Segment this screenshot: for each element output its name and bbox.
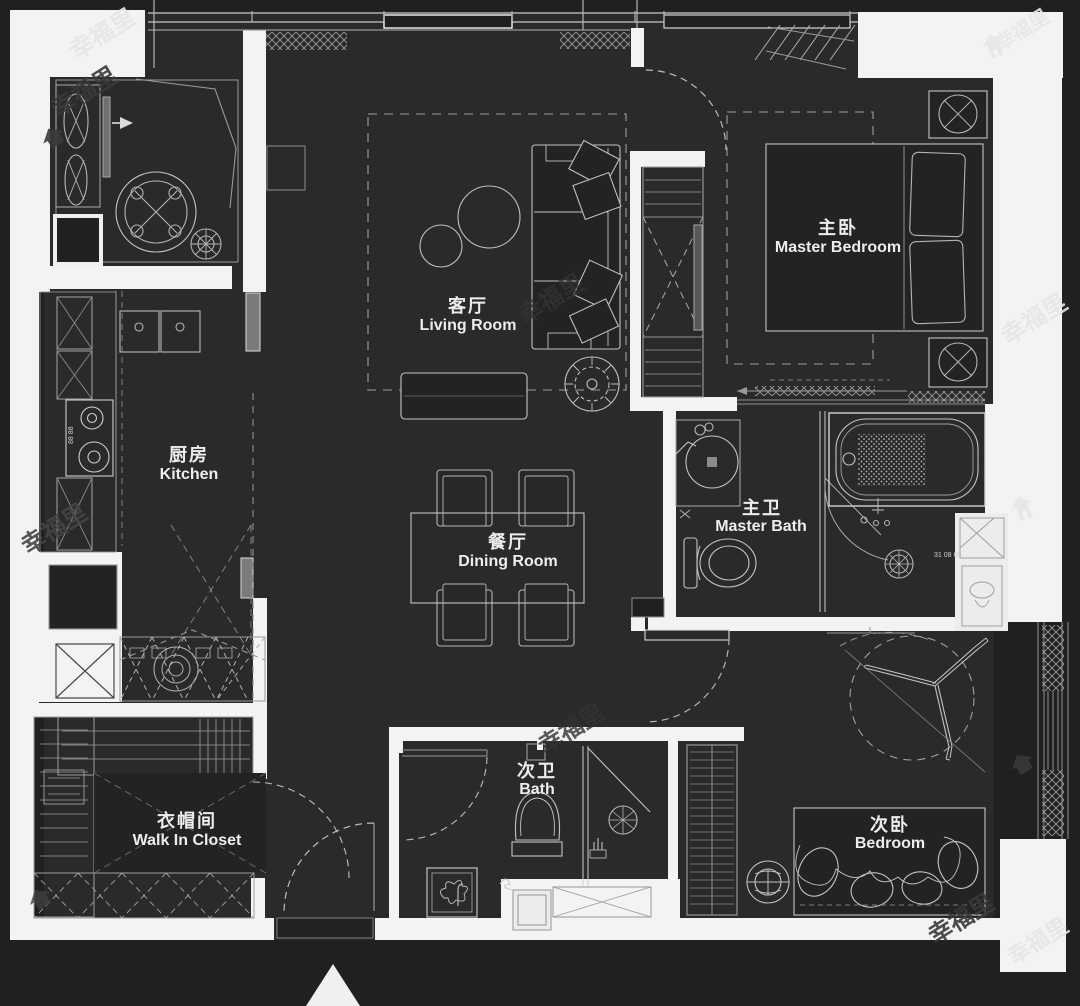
svg-text:Master Bedroom: Master Bedroom — [775, 239, 901, 256]
svg-text:次卫: 次卫 — [517, 760, 557, 781]
svg-text:31 08 60: 31 08 60 — [934, 552, 961, 559]
svg-text:厨房: 厨房 — [169, 444, 209, 465]
svg-text:餐厅: 餐厅 — [487, 531, 528, 552]
svg-text:Master Bath: Master Bath — [715, 518, 807, 535]
svg-text:衣帽间: 衣帽间 — [157, 810, 217, 831]
svg-text:88 88: 88 88 — [68, 426, 75, 444]
svg-text:主卧: 主卧 — [818, 217, 858, 238]
svg-text:Dining Room: Dining Room — [458, 553, 558, 570]
svg-text:客厅: 客厅 — [448, 295, 488, 316]
svg-text:Bath: Bath — [519, 781, 555, 798]
svg-text:Bedroom: Bedroom — [855, 835, 925, 852]
svg-text:次卧: 次卧 — [870, 814, 910, 835]
svg-text:Living Room: Living Room — [420, 317, 517, 334]
svg-text:主卫: 主卫 — [742, 497, 782, 518]
svg-text:Kitchen: Kitchen — [160, 466, 219, 483]
svg-text:Walk In Closet: Walk In Closet — [133, 832, 242, 849]
